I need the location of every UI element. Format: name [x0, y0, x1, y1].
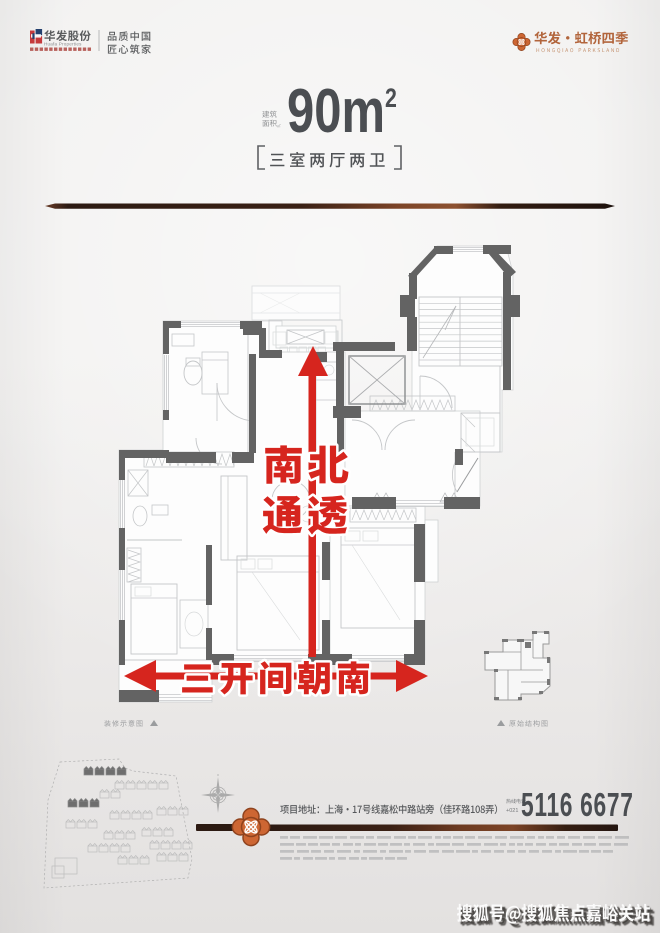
svg-text:2: 2: [385, 84, 397, 114]
svg-text:+021: +021: [506, 808, 518, 814]
svg-text:㎡: ㎡: [277, 123, 281, 128]
svg-text:90m: 90m: [287, 75, 385, 145]
svg-text:Huafa Properties: Huafa Properties: [44, 42, 82, 47]
svg-text:5116 6677: 5116 6677: [521, 787, 634, 824]
